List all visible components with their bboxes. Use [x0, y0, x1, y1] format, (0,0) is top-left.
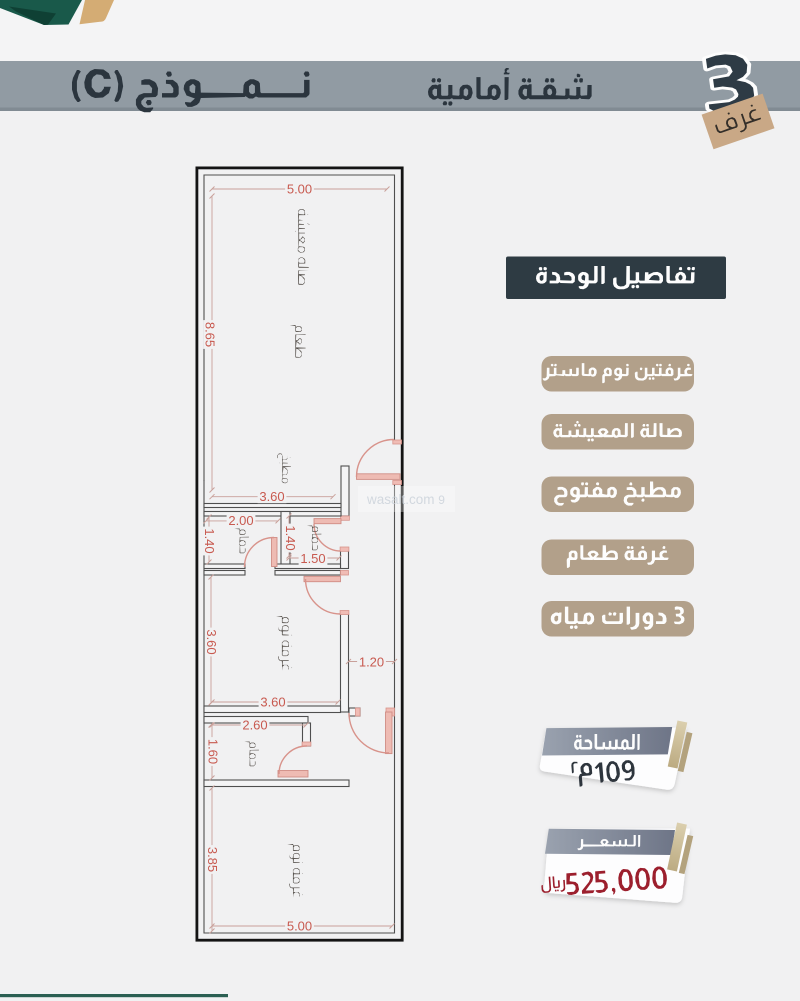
svg-text:1.50: 1.50: [300, 551, 325, 566]
svg-text:3.60: 3.60: [204, 629, 219, 654]
svg-text:5.00: 5.00: [287, 182, 312, 197]
svg-text:1.40: 1.40: [202, 528, 217, 553]
svg-text:3.60: 3.60: [260, 695, 285, 710]
svg-text:5.00: 5.00: [287, 919, 312, 934]
svg-text:1.40: 1.40: [283, 525, 298, 550]
svg-text:1.60: 1.60: [206, 739, 221, 764]
svg-text:2.60: 2.60: [242, 718, 267, 733]
svg-text:3.60: 3.60: [259, 489, 284, 504]
svg-text:wasalt.com 9: wasalt.com 9: [366, 492, 445, 507]
svg-text:1.20: 1.20: [359, 655, 384, 670]
svg-text:2.00: 2.00: [228, 513, 253, 528]
svg-text:3.85: 3.85: [205, 847, 220, 872]
svg-text:8.65: 8.65: [203, 322, 218, 347]
